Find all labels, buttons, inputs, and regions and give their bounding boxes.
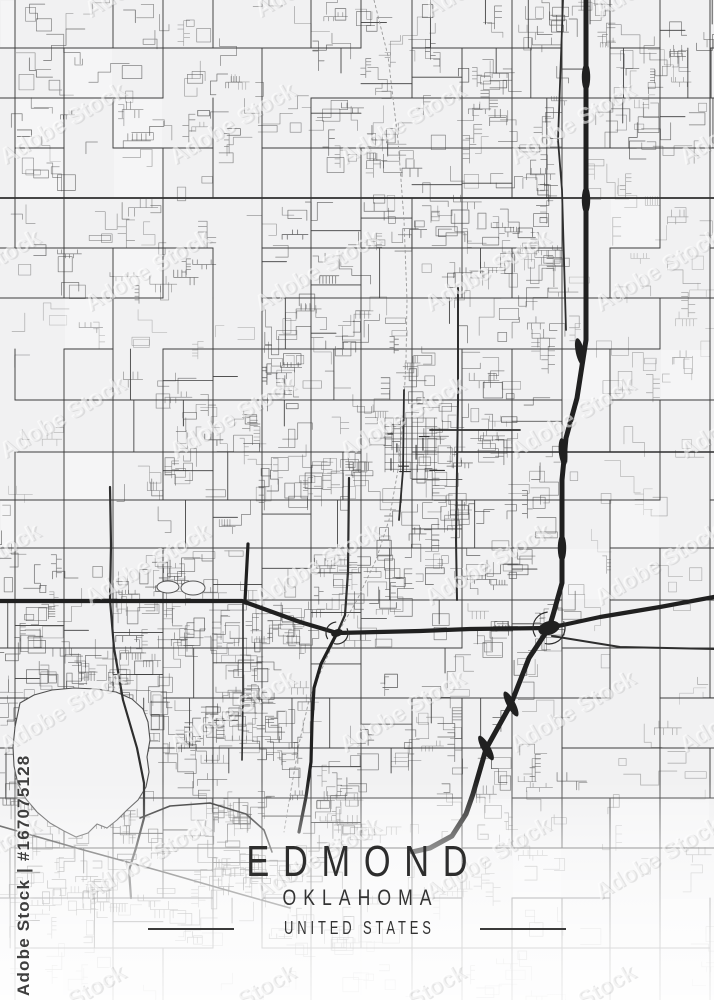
map-canvas bbox=[0, 0, 714, 1000]
map-poster: EDMOND OKLAHOMA UNITED STATES Adobe Stoc… bbox=[0, 0, 714, 1000]
